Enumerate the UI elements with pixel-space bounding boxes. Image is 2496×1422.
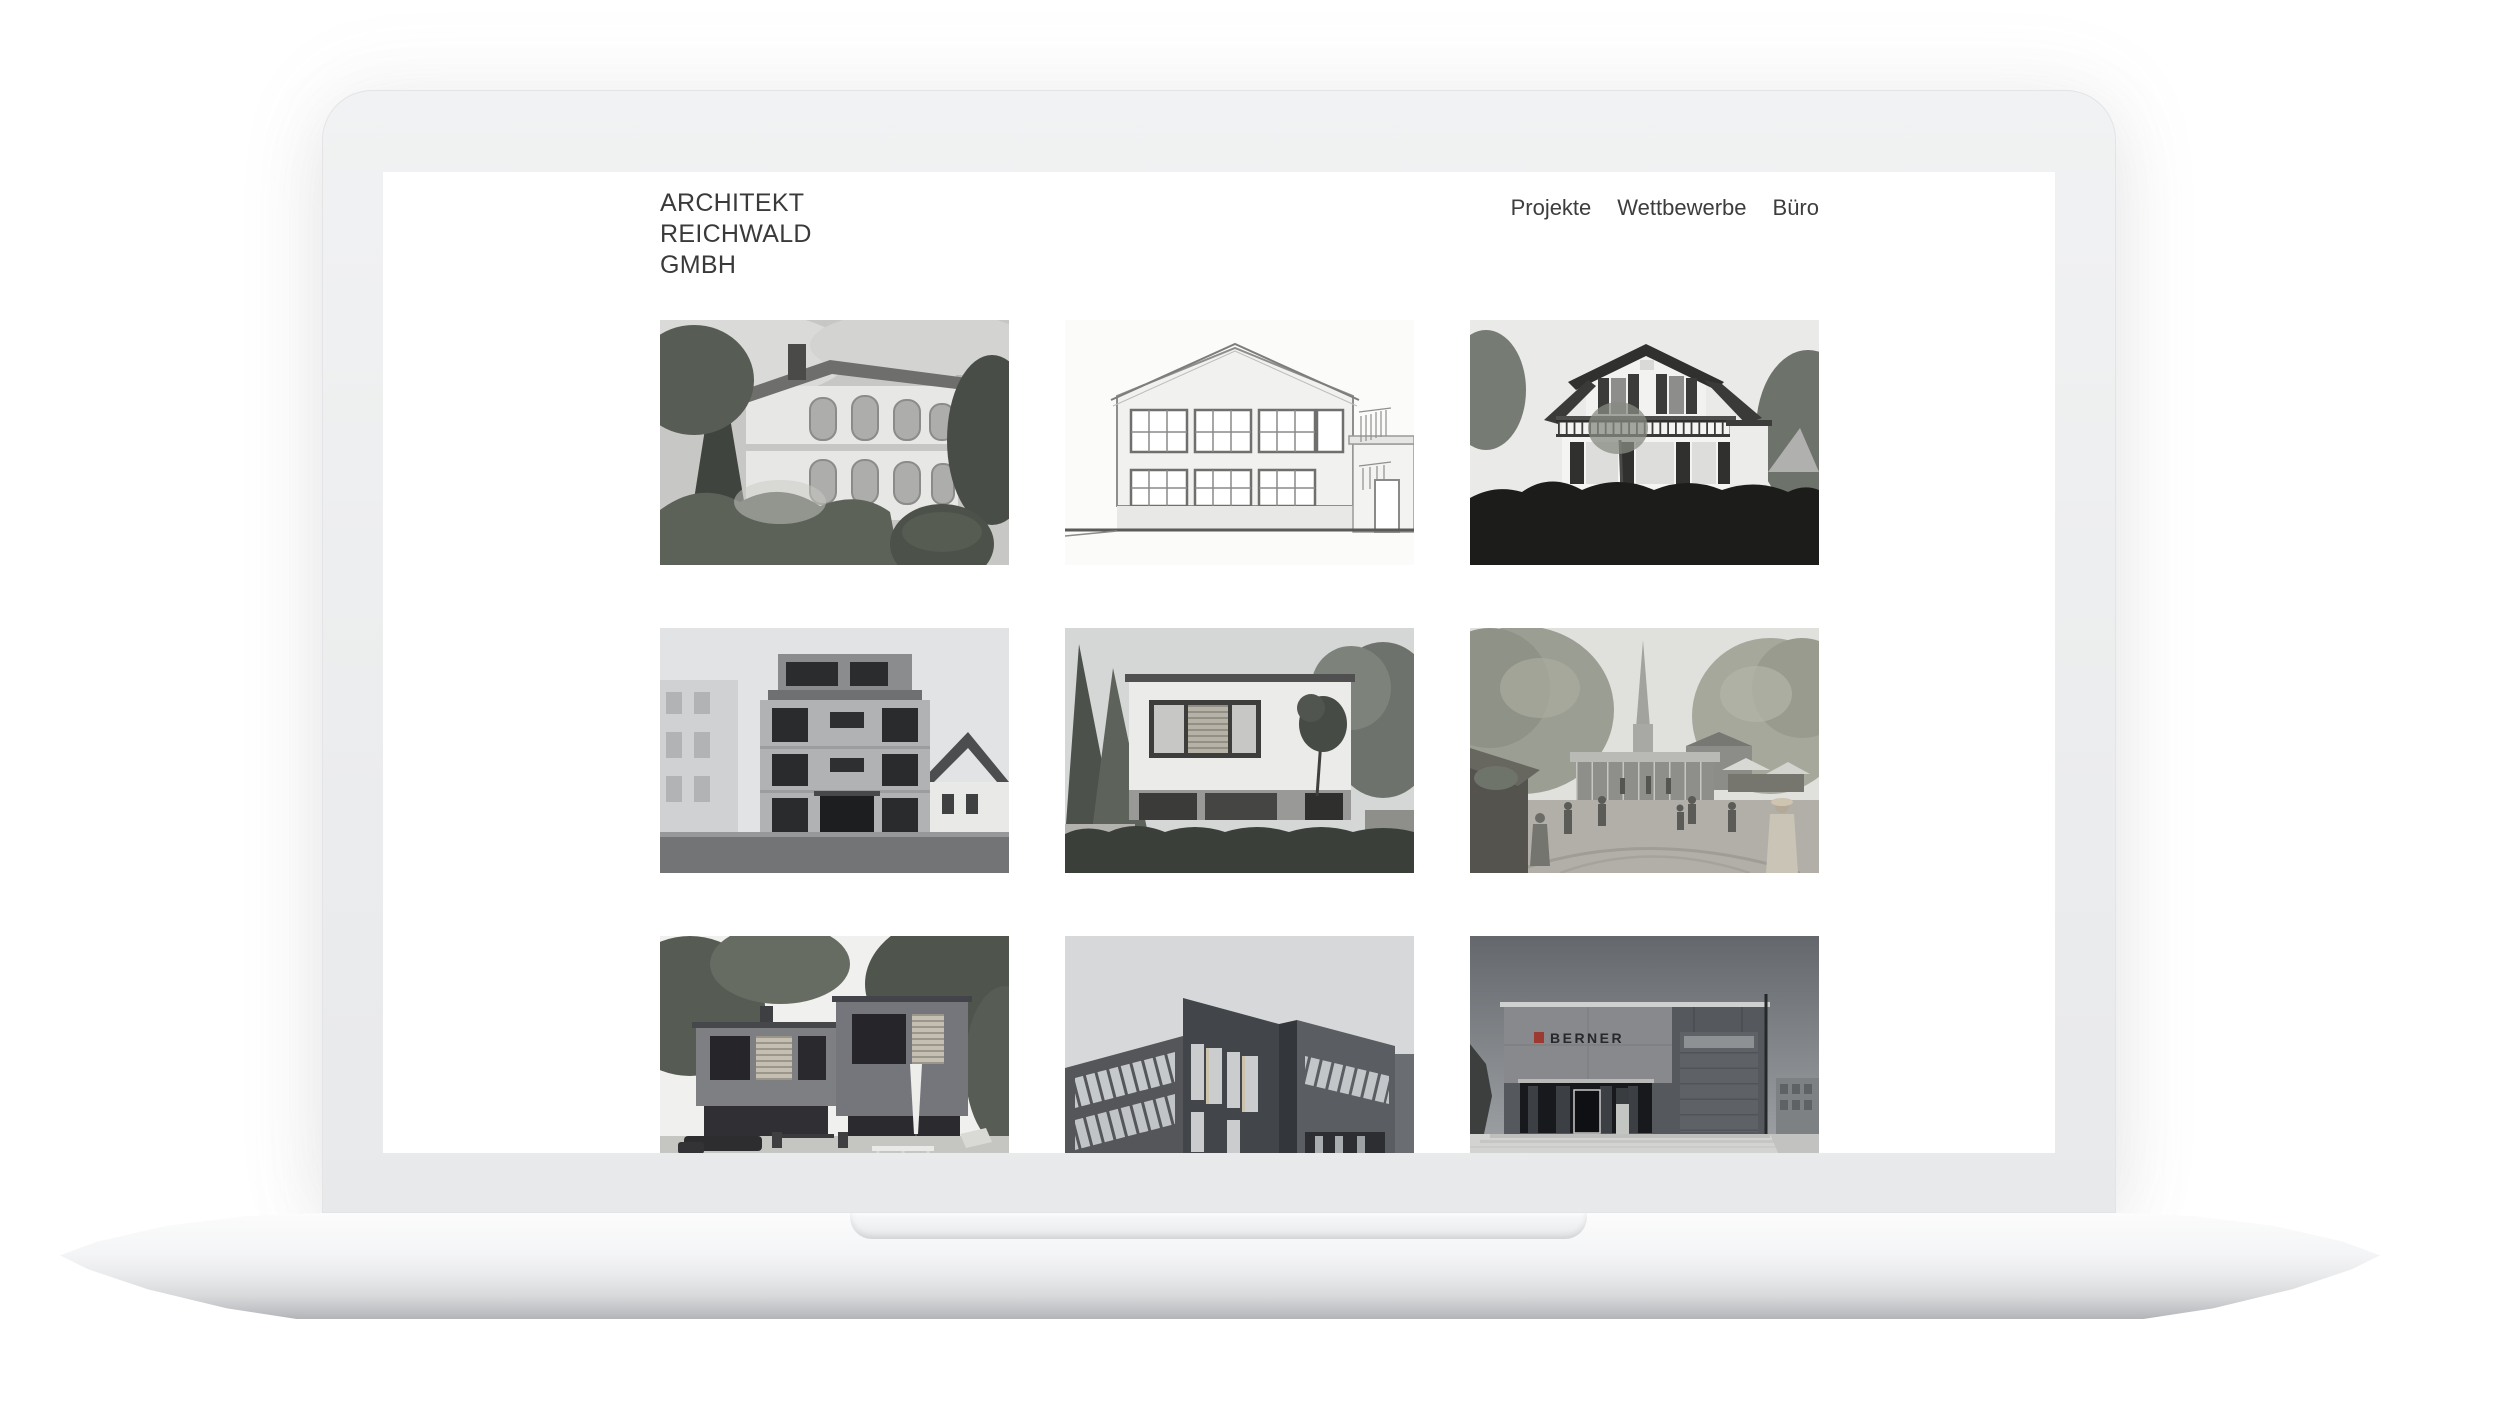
project-thumbnail-9[interactable]: BERNER	[1470, 936, 1819, 1153]
market-square-illustration	[1470, 628, 1819, 873]
project-thumbnail-1[interactable]	[660, 320, 1009, 565]
white-villa-illustration	[1470, 320, 1819, 565]
laptop-screen: ARCHITEKT REICHWALD GMBH Projekte Wettbe…	[383, 172, 2055, 1153]
nav-link-wettbewerbe[interactable]: Wettbewerbe	[1617, 195, 1746, 221]
berner-building-illustration: BERNER	[1470, 936, 1819, 1153]
laptop-base-notch	[850, 1213, 1587, 1239]
berner-logo-icon	[1534, 1032, 1544, 1043]
berner-facade-text: BERNER	[1550, 1030, 1624, 1046]
apartment-building-illustration	[660, 628, 1009, 873]
elevation-drawing-illustration	[1065, 320, 1414, 565]
project-thumbnail-3[interactable]	[1470, 320, 1819, 565]
project-thumbnail-5[interactable]	[1065, 628, 1414, 873]
nav-link-buero[interactable]: Büro	[1773, 195, 1819, 221]
logo-line-1: ARCHITEKT	[660, 188, 812, 219]
brick-office-illustration	[1065, 936, 1414, 1153]
cubic-house-illustration	[1065, 628, 1414, 873]
project-grid: BERNER	[660, 320, 1819, 1153]
laptop-base	[60, 1213, 2380, 1319]
project-thumbnail-6[interactable]	[1470, 628, 1819, 873]
historic-villa-illustration	[660, 320, 1009, 565]
site-logo[interactable]: ARCHITEKT REICHWALD GMBH	[660, 186, 812, 281]
laptop-lid: ARCHITEKT REICHWALD GMBH Projekte Wettbe…	[322, 90, 2116, 1213]
garden-house-illustration	[660, 936, 1009, 1153]
logo-line-2: REICHWALD	[660, 219, 812, 250]
nav-link-projekte[interactable]: Projekte	[1511, 195, 1592, 221]
project-thumbnail-7[interactable]	[660, 936, 1009, 1153]
project-thumbnail-4[interactable]	[660, 628, 1009, 873]
main-nav: Projekte Wettbewerbe Büro	[1511, 195, 1819, 221]
project-thumbnail-2[interactable]	[1065, 320, 1414, 565]
site-header: ARCHITEKT REICHWALD GMBH Projekte Wettbe…	[660, 186, 1819, 281]
logo-line-3: GMBH	[660, 250, 812, 281]
project-thumbnail-8[interactable]	[1065, 936, 1414, 1153]
laptop-mockup: ARCHITEKT REICHWALD GMBH Projekte Wettbe…	[0, 0, 2496, 1422]
